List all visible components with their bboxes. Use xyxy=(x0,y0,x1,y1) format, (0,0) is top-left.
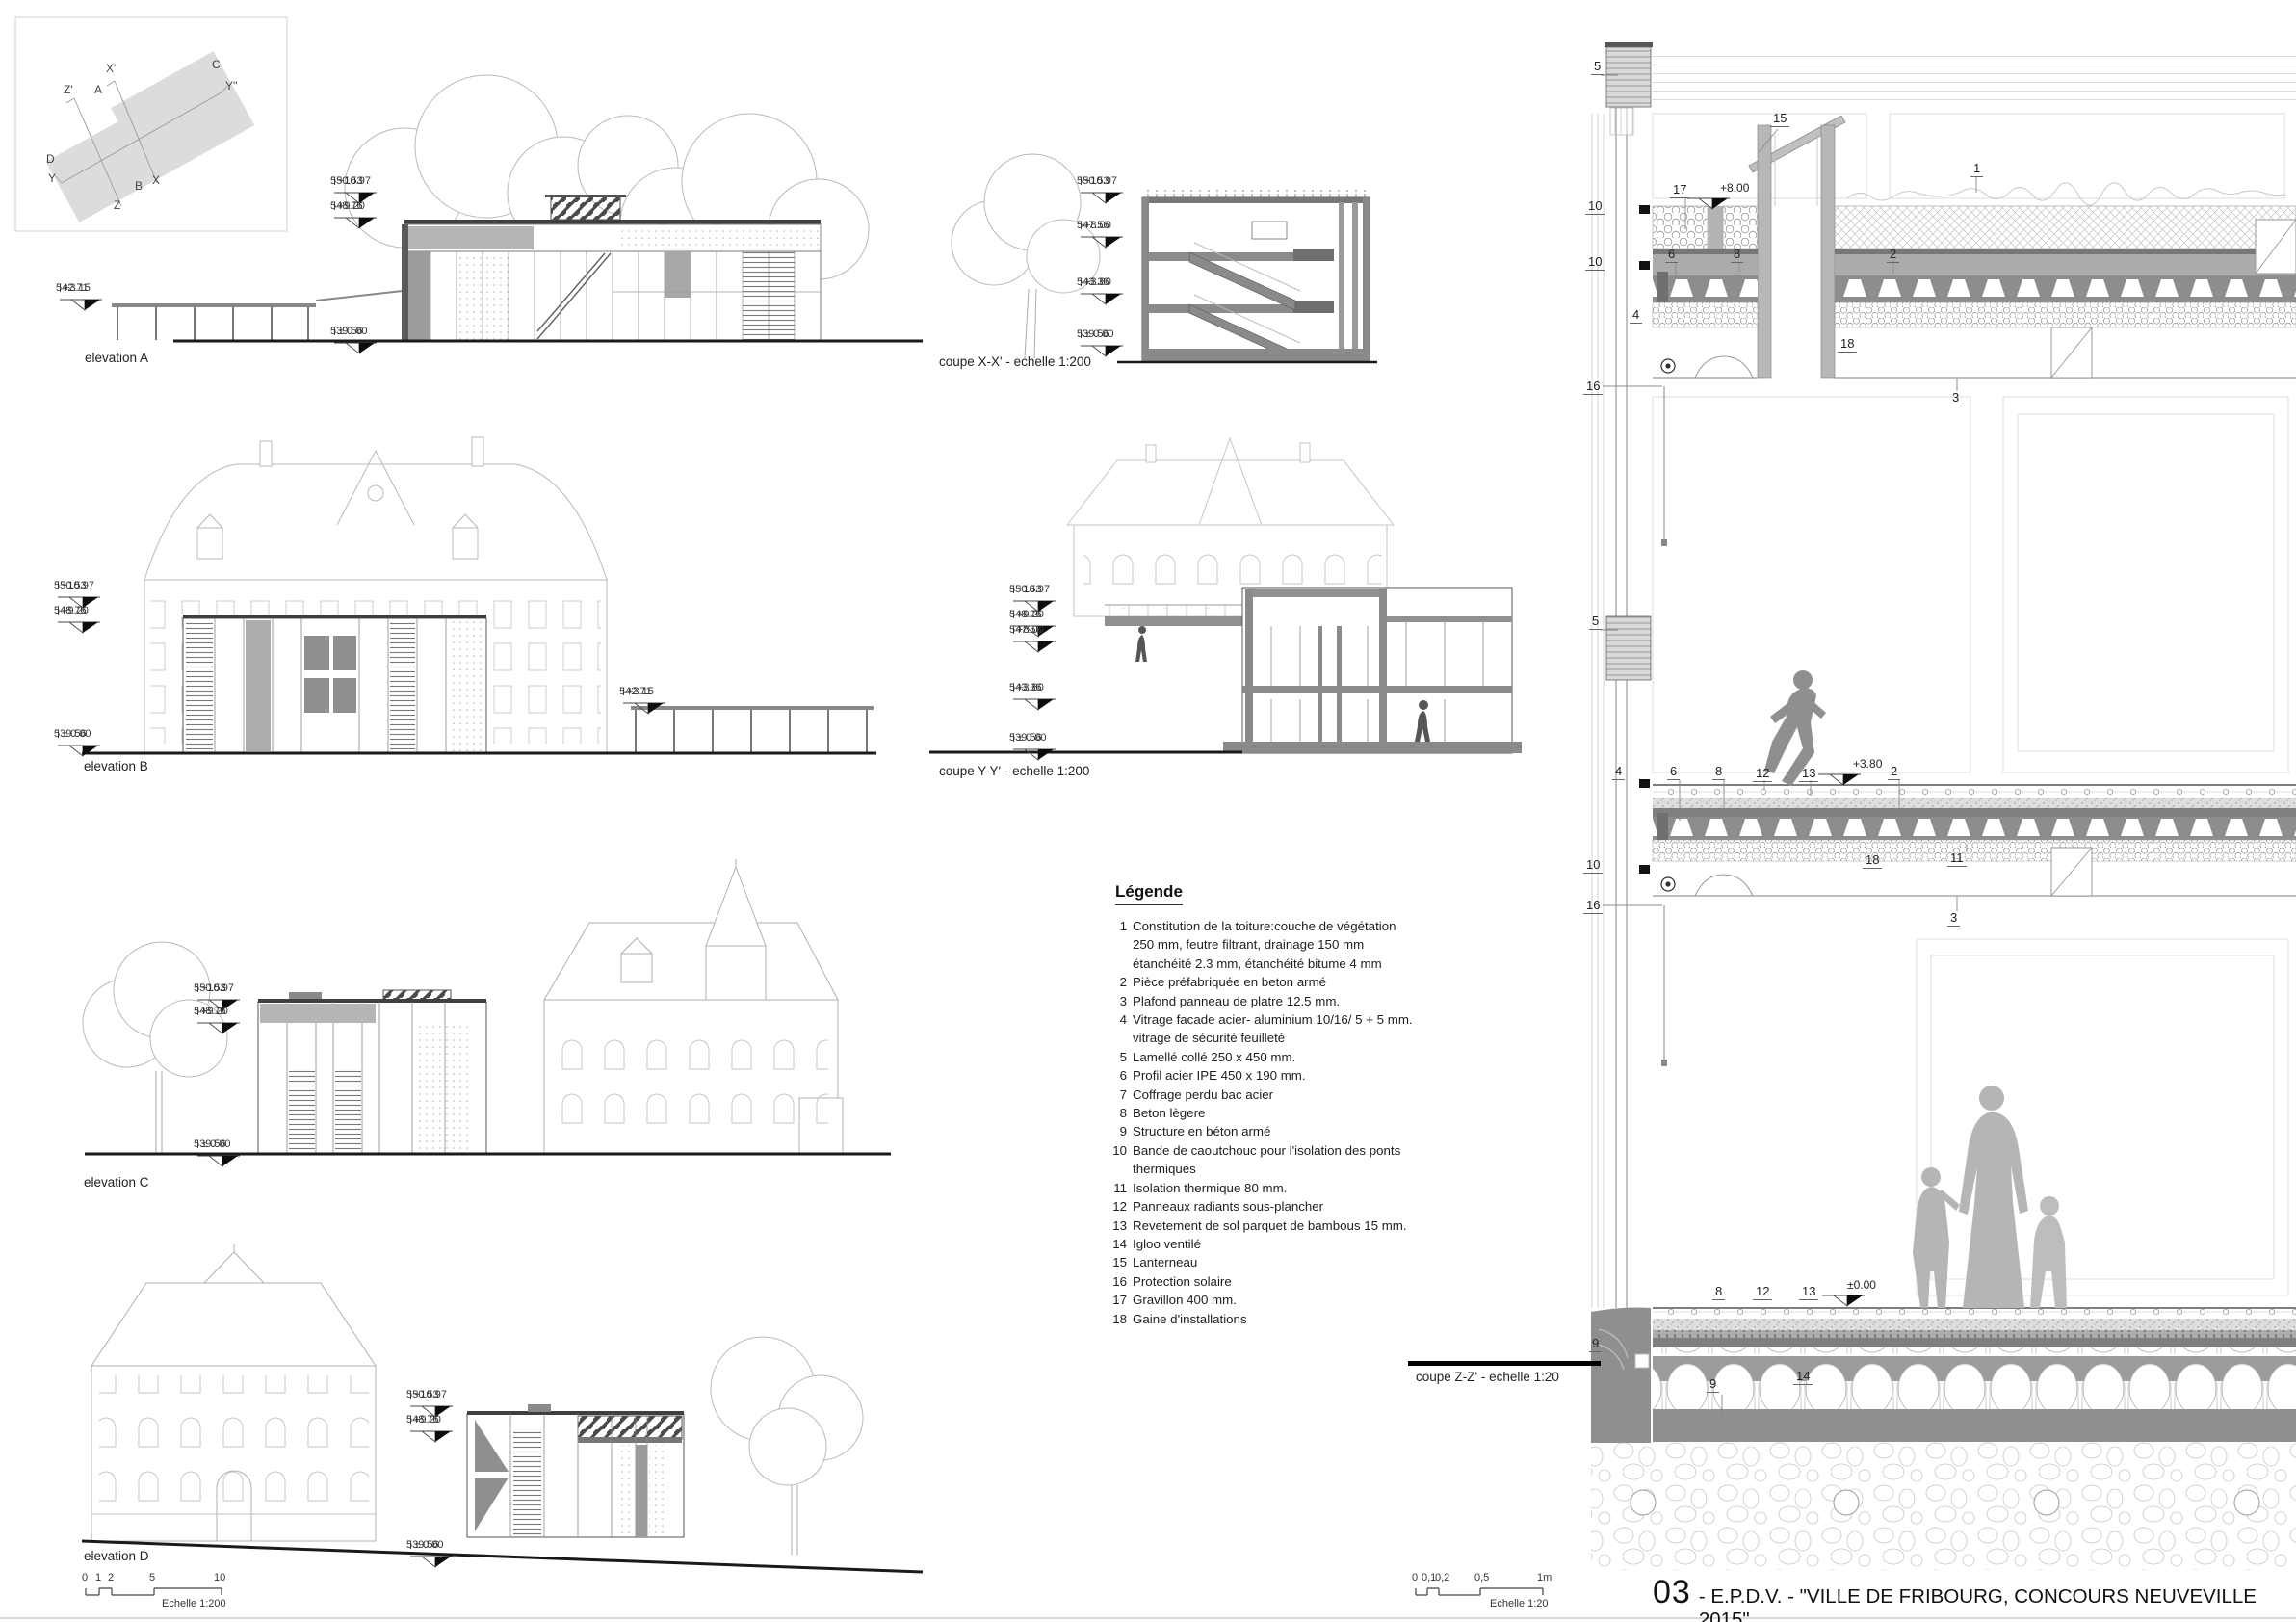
level-marker: 542.71+3.15 xyxy=(56,282,64,294)
callout-5: 5 xyxy=(1589,615,1602,630)
legend-item: 14Igloo ventilé xyxy=(1104,1235,1443,1253)
detail-level-8: +8.00 xyxy=(1720,181,1749,195)
legend-item: vitrage de sécurité feuilleté xyxy=(1104,1029,1443,1047)
legend-item: étanchéité 2.3 mm, étanchéité bitume 4 m… xyxy=(1104,955,1443,973)
callout-8: 8 xyxy=(1712,1285,1725,1300)
legend-title: Légende xyxy=(1115,882,1183,905)
competition-board: X' C Y'' Z' A D Y B X Z 550.53+10.97 548… xyxy=(0,0,2296,1622)
title-block: 03 - E.P.D.V. - "VILLE DE FRIBOURG, CONC… xyxy=(1653,1574,2296,1622)
callout-18: 18 xyxy=(1863,853,1882,869)
level-marker: 542.71+3.15 xyxy=(619,686,627,697)
scale20-tick: 0,2 xyxy=(1435,1572,1449,1583)
callout-8: 8 xyxy=(1731,248,1743,263)
scale200-tick: 5 xyxy=(149,1572,155,1583)
scale200-tick: 10 xyxy=(214,1572,225,1583)
keyplan-label-z-prime: Z' xyxy=(64,83,73,96)
level-marker: 548.76+9.20 xyxy=(1009,609,1017,620)
legend-item: 5Lamellé collé 250 x 450 mm. xyxy=(1104,1048,1443,1066)
scale20-tick: 0,5 xyxy=(1474,1572,1489,1583)
level-marker: 539.56± 0.00 xyxy=(194,1138,201,1150)
callout-10: 10 xyxy=(1585,199,1605,215)
callout-9: 9 xyxy=(1707,1377,1719,1393)
legend: Légende 1Constitution de la toiture:couc… xyxy=(1104,882,1443,1328)
callout-8: 8 xyxy=(1712,765,1725,780)
callout-10: 10 xyxy=(1585,255,1605,271)
legend-item: 7Coffrage perdu bac acier xyxy=(1104,1086,1443,1104)
scale20-label: Echelle 1:20 xyxy=(1490,1598,1549,1609)
legend-item: 250 mm, feutre filtrant, drainage 150 mm xyxy=(1104,935,1443,954)
text-layer: X' C Y'' Z' A D Y B X Z 550.53+10.97 548… xyxy=(0,0,2296,1622)
keyplan-label-b: B xyxy=(135,179,143,193)
scale200-label: Echelle 1:200 xyxy=(162,1598,226,1609)
callout-2: 2 xyxy=(1888,765,1900,780)
callout-1: 1 xyxy=(1970,162,1983,177)
scale20-tick: 0 xyxy=(1412,1572,1418,1583)
keyplan-label-d: D xyxy=(46,152,55,166)
callout-16: 16 xyxy=(1583,379,1603,395)
level-marker: 548.76+9.20 xyxy=(194,1006,201,1017)
legend-item: 8Beton lègere xyxy=(1104,1104,1443,1122)
legend-item: 9Structure en béton armé xyxy=(1104,1122,1443,1140)
level-marker: 548.76+9.20 xyxy=(54,605,62,616)
sheet-number: 03 xyxy=(1653,1574,1691,1611)
callout-5: 5 xyxy=(1591,60,1604,75)
scale200-tick: 0 xyxy=(82,1572,88,1583)
callout-15: 15 xyxy=(1770,112,1789,127)
level-marker: 539.56± 0.00 xyxy=(330,326,338,337)
keyplan-label-a: A xyxy=(94,83,102,96)
callout-13: 13 xyxy=(1799,767,1818,782)
level-marker: 550.53+10.97 xyxy=(1009,584,1017,595)
level-marker: 539.56± 0.00 xyxy=(54,728,62,740)
keyplan-label-y: Y xyxy=(48,171,56,185)
level-marker: 539.56± 0.00 xyxy=(406,1539,414,1551)
callout-12: 12 xyxy=(1753,767,1772,782)
level-marker: 550.53+10.97 xyxy=(194,982,201,994)
callout-4: 4 xyxy=(1612,765,1625,780)
caption-elevation-d: elevation D xyxy=(84,1549,149,1563)
keyplan-label-y-dprime: Y'' xyxy=(225,79,238,92)
level-marker: 539.56± 0.00 xyxy=(1009,732,1017,744)
level-marker: 543.36+3.80 xyxy=(1009,682,1017,693)
callout-12: 12 xyxy=(1753,1285,1772,1300)
caption-coupe-xx: coupe X-X' - echelle 1:200 xyxy=(939,354,1091,369)
level-marker: 548.76+9.20 xyxy=(330,200,338,212)
detail-level-380: +3.80 xyxy=(1853,757,1882,771)
callout-3: 3 xyxy=(1949,391,1962,406)
legend-item: 6Profil acier IPE 450 x 190 mm. xyxy=(1104,1066,1443,1085)
callout-16: 16 xyxy=(1583,899,1603,914)
keyplan-label-c: C xyxy=(212,58,221,71)
legend-item: 18Gaine d'installations xyxy=(1104,1310,1443,1328)
legend-item: 12Panneaux radiants sous-plancher xyxy=(1104,1197,1443,1216)
callout-13: 13 xyxy=(1799,1285,1818,1300)
sheet-title: - E.P.D.V. - "VILLE DE FRIBOURG, CONCOUR… xyxy=(1699,1585,2296,1622)
scale20-tick: 0,1 xyxy=(1422,1572,1436,1583)
level-marker: 548.76+9.20 xyxy=(406,1414,414,1426)
level-marker: 543.36+3.80 xyxy=(1077,276,1084,288)
legend-item: 17Gravillon 400 mm. xyxy=(1104,1291,1443,1309)
callout-10: 10 xyxy=(1583,858,1603,874)
legend-item: 11Isolation thermique 80 mm. xyxy=(1104,1179,1443,1197)
legend-item: 10Bande de caoutchouc pour l'isolation d… xyxy=(1104,1141,1443,1179)
legend-item: 15Lanterneau xyxy=(1104,1253,1443,1271)
callout-14: 14 xyxy=(1793,1370,1813,1385)
caption-elevation-a: elevation A xyxy=(85,351,148,365)
callout-3: 3 xyxy=(1947,911,1960,927)
level-marker: 550.53+10.97 xyxy=(54,580,62,591)
caption-elevation-b: elevation B xyxy=(84,759,148,773)
scale200-tick: 2 xyxy=(108,1572,114,1583)
legend-item: 13Revetement de sol parquet de bambous 1… xyxy=(1104,1216,1443,1235)
scale20-tick: 1m xyxy=(1537,1572,1552,1583)
keyplan-label-z: Z xyxy=(114,198,120,212)
level-marker: 550.53+10.97 xyxy=(330,175,338,187)
legend-item: 1Constitution de la toiture:couche de vé… xyxy=(1104,917,1443,935)
legend-item: 4Vitrage facade acier- aluminium 10/16/ … xyxy=(1104,1010,1443,1029)
level-marker: 539.56± 0.00 xyxy=(1077,328,1084,340)
callout-9: 9 xyxy=(1589,1337,1602,1352)
scale200-tick: 1 xyxy=(95,1572,101,1583)
caption-coupe-yy: coupe Y-Y' - echelle 1:200 xyxy=(939,764,1089,778)
callout-6: 6 xyxy=(1665,248,1678,263)
keyplan-label-x: X xyxy=(152,173,160,187)
callout-18: 18 xyxy=(1838,337,1857,353)
level-marker: 550.53+10.97 xyxy=(406,1389,414,1400)
callout-17: 17 xyxy=(1670,183,1689,198)
level-marker: 550.53+10.97 xyxy=(1077,175,1084,187)
callout-2: 2 xyxy=(1887,248,1899,263)
caption-coupe-zz: coupe Z-Z' - echelle 1:20 xyxy=(1416,1370,1559,1384)
callout-6: 6 xyxy=(1667,765,1680,780)
level-marker: 547.56+8.00 xyxy=(1009,624,1017,636)
detail-level-0: ±0.00 xyxy=(1847,1278,1876,1292)
keyplan-label-x-prime: X' xyxy=(106,62,116,75)
legend-item: 3Plafond panneau de platre 12.5 mm. xyxy=(1104,992,1443,1010)
level-marker: 547.56+8.00 xyxy=(1077,220,1084,231)
legend-item: 2Pièce préfabriquée en beton armé xyxy=(1104,973,1443,991)
caption-elevation-c: elevation C xyxy=(84,1175,149,1190)
callout-4: 4 xyxy=(1630,308,1642,324)
callout-11: 11 xyxy=(1947,851,1967,867)
legend-item: 16Protection solaire xyxy=(1104,1272,1443,1291)
